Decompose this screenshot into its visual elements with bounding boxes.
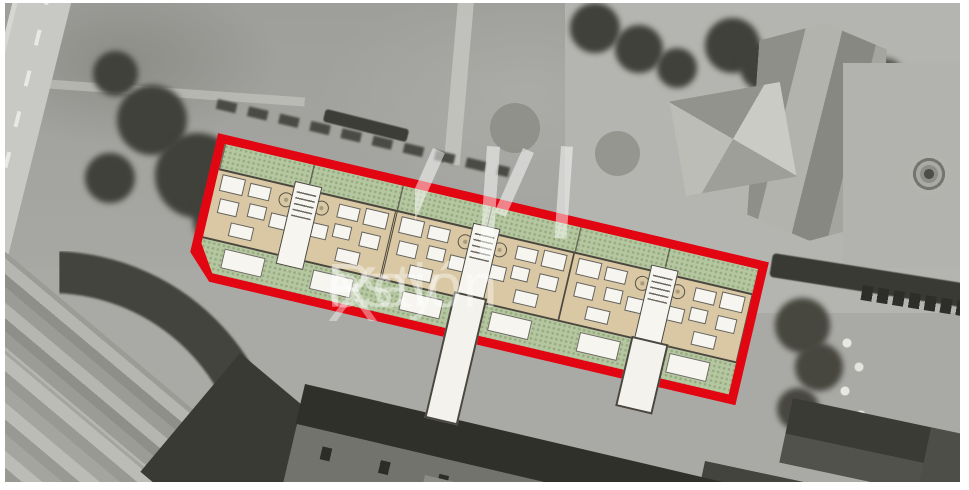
patio [576,332,621,361]
plan-room [718,291,745,313]
fountain [906,151,952,197]
patio [220,249,265,278]
plan-room [604,266,629,285]
plan-room [228,222,255,241]
plan-room [247,183,272,202]
plan-room [603,287,624,305]
plan-room [363,208,390,230]
tree [93,51,138,96]
bush [595,131,640,176]
plan-room [217,198,240,217]
tree [615,25,663,73]
plan-room [584,306,611,325]
logo-stroke [415,148,445,234]
plan-room [219,174,246,196]
plan-room [692,287,717,306]
stair-treads [647,272,673,304]
plan-room [714,315,737,334]
plan-room [358,231,381,250]
plan-room [336,204,361,223]
aerial-photo: ReyXestión [5,3,960,482]
plan-room [687,307,708,325]
tree [85,153,135,203]
logo-stroke [495,148,534,217]
plan-room [332,223,353,241]
hip-roof-wing [670,82,797,196]
plan-room [247,203,268,221]
watermark-part: estión [327,253,498,321]
stair-treads [291,189,317,221]
real-estate-aerial-plan-image: ReyXestión [0,0,969,490]
logo-stroke [555,146,573,239]
logo-stroke [479,146,500,259]
plan-room [690,331,717,350]
tree [657,48,697,88]
tree [570,3,620,53]
patio [665,353,710,382]
